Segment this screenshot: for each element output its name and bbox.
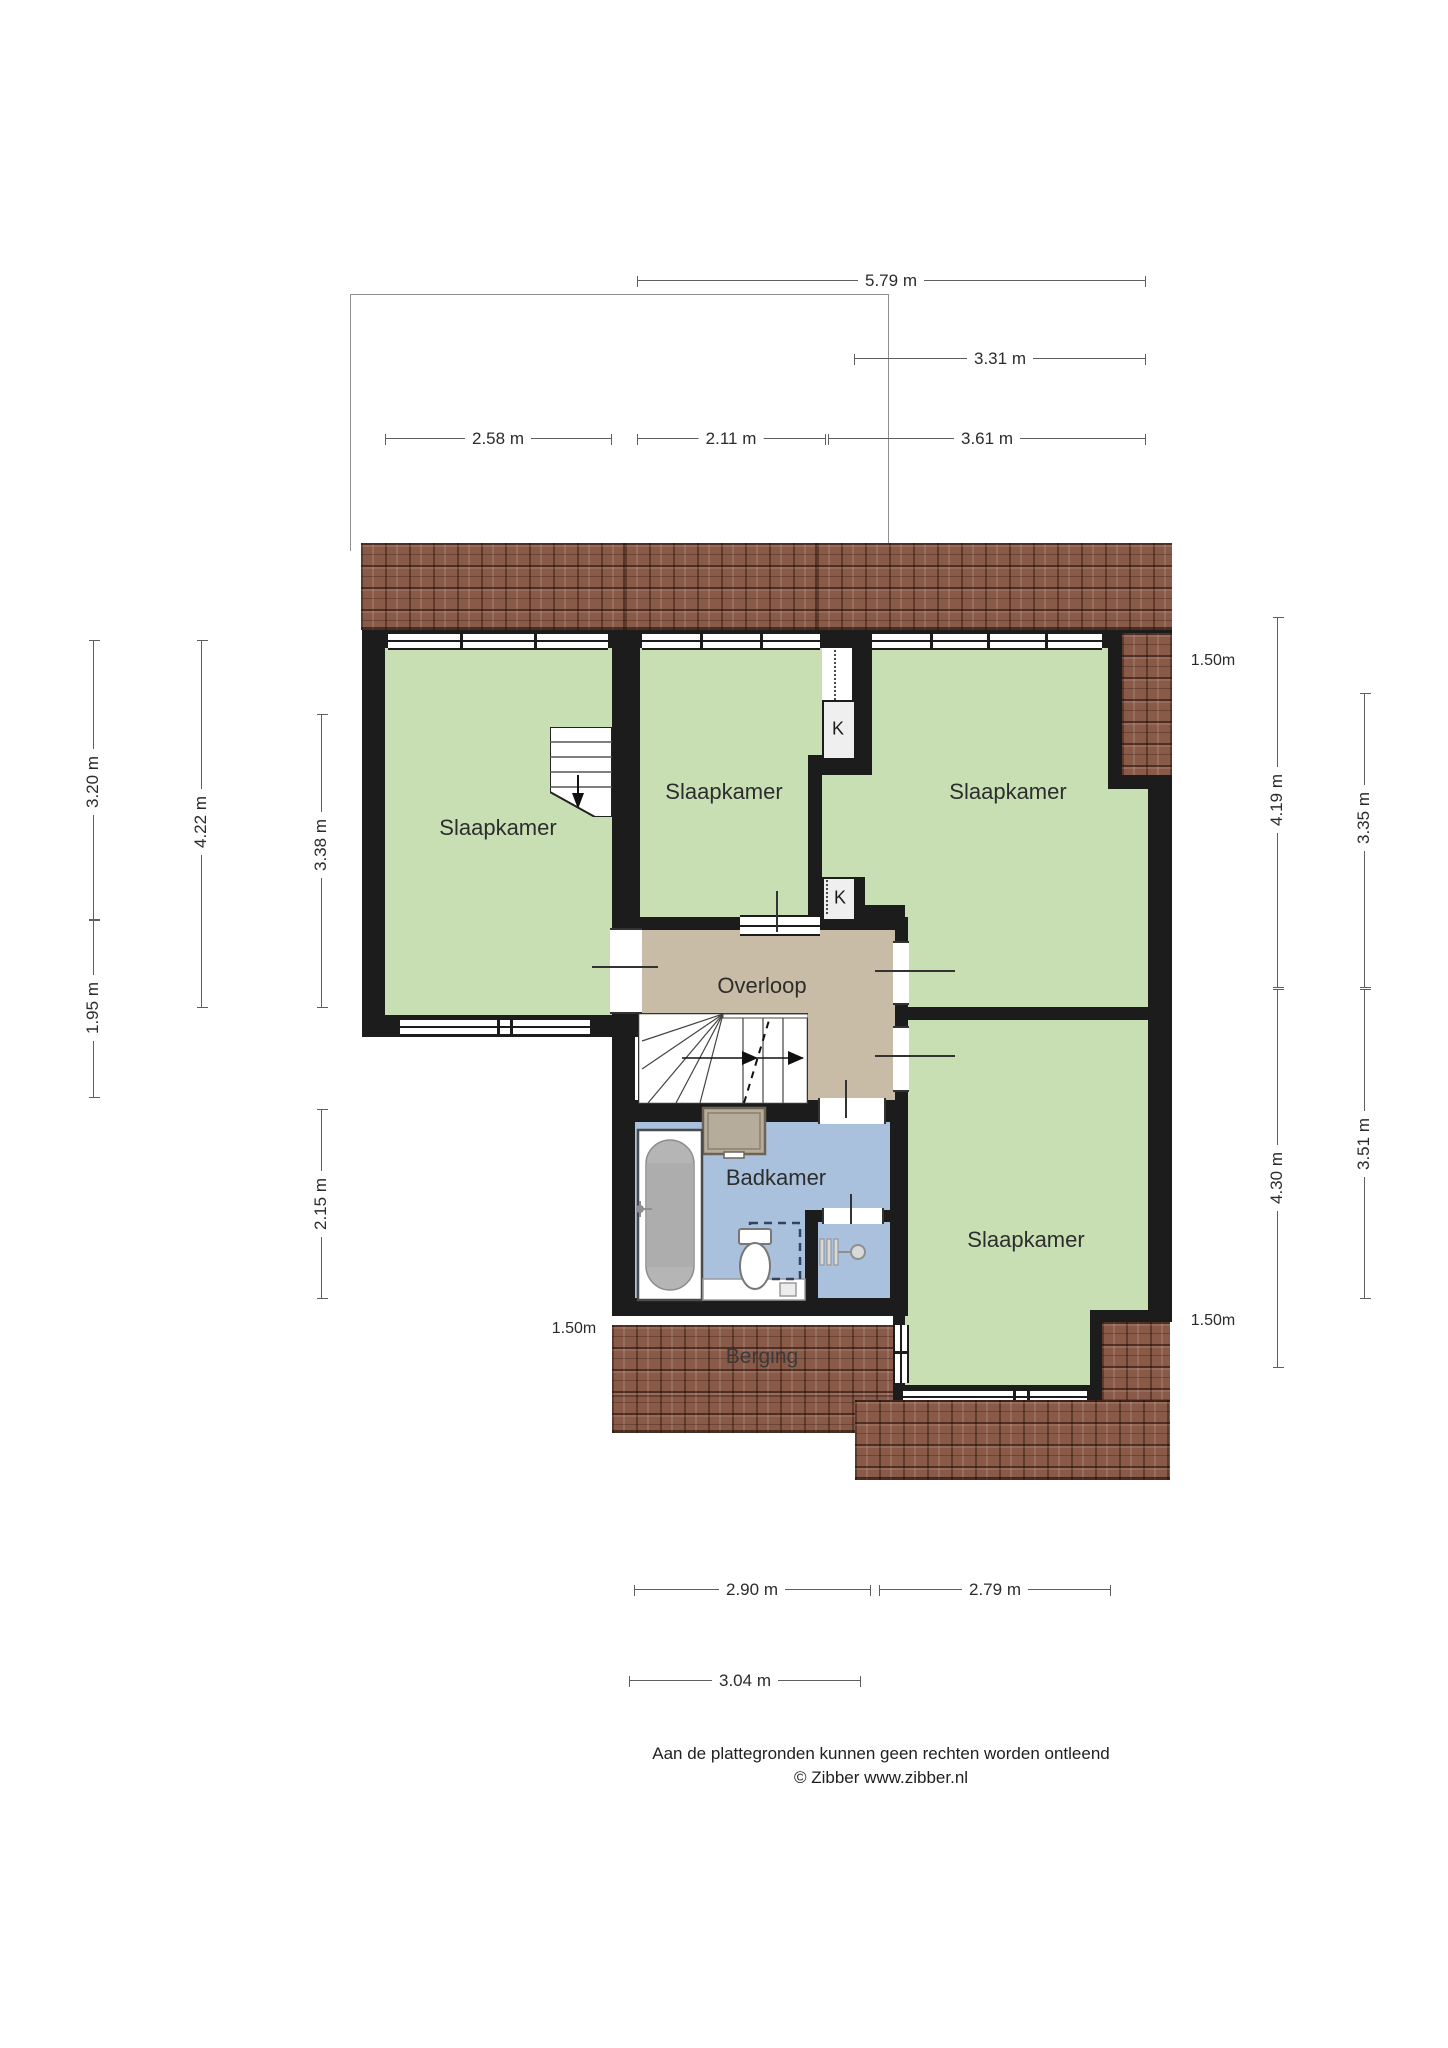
window-mullion [760, 632, 763, 650]
door-r3 [893, 941, 909, 1005]
footer-copyright: © Zibber www.zibber.nl [794, 1768, 968, 1788]
stairs-upper-icon [550, 727, 612, 817]
toilet-icon [739, 1229, 771, 1289]
wall-notch1-bottom [1108, 775, 1172, 789]
headroom-label-right-bottom: 1.50m [1191, 1312, 1235, 1330]
dim-label-579: 5.79 m [858, 271, 924, 291]
door-r1-tick [592, 966, 658, 968]
closet-k1-label: K [832, 719, 844, 740]
roof-berging [612, 1325, 893, 1433]
dim-label-215: 2.15 m [311, 1171, 331, 1237]
roof-top [361, 543, 1172, 630]
window-mullion [1045, 632, 1048, 650]
door-r4 [893, 1026, 909, 1092]
wall-r2-right-lower [808, 775, 822, 917]
headroom-label-left-bottom: 1.50m [552, 1320, 596, 1338]
room-label-slaapkamer-1: Slaapkamer [439, 815, 556, 841]
dim-label-320: 3.20 m [83, 749, 103, 815]
window-mullion [987, 632, 990, 650]
closet-dashed-line [826, 880, 828, 914]
roof-notch-topright [1122, 633, 1172, 775]
door-r3-tick [875, 970, 955, 972]
window-overloop-r2 [740, 915, 820, 936]
window-mullion [510, 1018, 513, 1036]
wall-notch2-top [1102, 1310, 1170, 1322]
dim-label-430: 4.30 m [1267, 1145, 1287, 1211]
roof-edge [855, 1400, 1170, 1402]
door-r4-tick [875, 1055, 955, 1057]
dim-label-419: 4.19 m [1267, 767, 1287, 833]
window-mullion [700, 632, 703, 650]
closet-k2-label: K [834, 888, 846, 909]
cabinet-icon [703, 1108, 765, 1158]
roof-bottom-right [855, 1400, 1170, 1480]
bathtub-icon [636, 1130, 702, 1300]
window-mullion [460, 632, 463, 650]
window-mullion [497, 1018, 500, 1036]
wall-notch2-left [1090, 1310, 1102, 1400]
window-r1-bottom [400, 1018, 590, 1036]
window-mullion [893, 1351, 909, 1354]
roof-seam [815, 543, 817, 630]
dim-label-335: 3.35 m [1354, 785, 1374, 851]
dim-label-195: 1.95 m [83, 975, 103, 1041]
wall-left-outer [362, 630, 385, 1037]
room-label-slaapkamer-2: Slaapkamer [665, 779, 782, 805]
roof-eave [612, 1430, 893, 1433]
wall-r1-right-upper [612, 630, 640, 930]
roof-notch-bottomright [1102, 1322, 1170, 1400]
bathroom-fixtures [612, 1103, 908, 1316]
wall-r4-top [895, 1007, 1148, 1020]
room-label-slaapkamer-3: Slaapkamer [949, 779, 1066, 805]
dim-label-211: 2.11 m [699, 429, 764, 449]
footer-disclaimer: Aan de plattegronden kunnen geen rechten… [652, 1744, 1109, 1764]
window-r2-top [642, 632, 820, 650]
roof-seam [623, 543, 625, 630]
window-mullion [930, 632, 933, 650]
dim-label-290: 2.90 m [719, 1580, 785, 1600]
headroom-label-right-top: 1.50m [1191, 652, 1235, 670]
dim-label-279: 2.79 m [962, 1580, 1028, 1600]
room-label-badkamer: Badkamer [726, 1165, 826, 1191]
dim-label-304: 3.04 m [712, 1671, 778, 1691]
wall-notch1-left [1108, 633, 1122, 789]
dim-label-361: 3.61 m [954, 429, 1020, 449]
window-r1-top [388, 632, 608, 650]
room-label-overloop: Overloop [717, 973, 806, 999]
door-swing-tick [776, 891, 778, 932]
dim-label-351: 3.51 m [1354, 1111, 1374, 1177]
radiator-icon [820, 1239, 865, 1265]
door-r1 [610, 928, 642, 1014]
dim-label-331: 3.31 m [967, 349, 1033, 369]
floorplan-canvas: K K [0, 0, 1448, 2048]
stairs-main-icon [638, 1013, 808, 1104]
roof-fold-line [612, 1395, 893, 1397]
window-r3-top [872, 632, 1102, 650]
dim-label-258: 2.58 m [465, 429, 531, 449]
dim-label-338: 3.38 m [311, 812, 331, 878]
closet-dashed-line [834, 650, 836, 700]
dim-label-422: 4.22 m [191, 789, 211, 855]
room-label-berging: Berging [726, 1345, 798, 1369]
room-label-slaapkamer-4: Slaapkamer [967, 1227, 1084, 1253]
window-r4-left [893, 1325, 909, 1383]
window-mullion [534, 632, 537, 650]
roof-plane-outline [350, 294, 889, 551]
roof-eave [855, 1477, 1170, 1480]
